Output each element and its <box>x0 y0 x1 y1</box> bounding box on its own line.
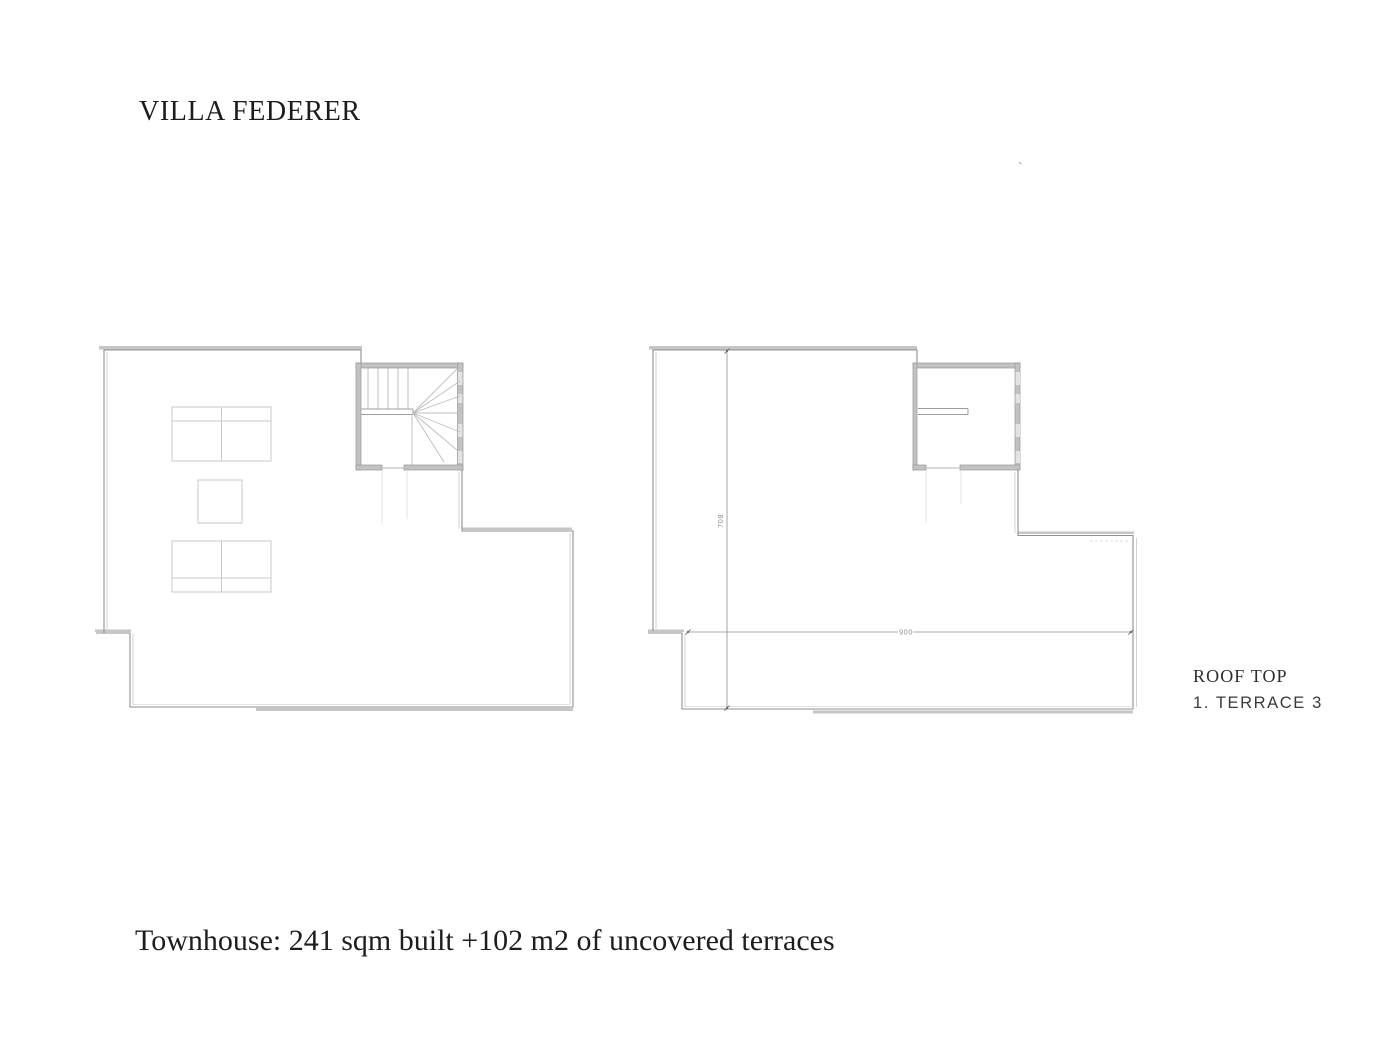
right-stairwell <box>913 363 1020 523</box>
stair-rail-icon <box>918 409 968 415</box>
page-title: VILLA FEDERER <box>139 96 361 128</box>
left-terrace-outline <box>95 346 573 711</box>
left-stairwell <box>356 363 463 524</box>
legend-item-terrace: 1. TERRACE 3 <box>1193 694 1323 713</box>
sofa-icon <box>172 407 271 461</box>
dim-label-width: 900 <box>899 628 913 637</box>
sofa-icon <box>172 541 271 592</box>
plan-legend: ROOF TOP 1. TERRACE 3 <box>1193 666 1323 713</box>
stray-mark: ` <box>1018 160 1023 177</box>
stair-winders-icon <box>412 369 460 465</box>
stair-treads-icon <box>368 369 408 410</box>
left-terrace-furniture <box>172 407 271 592</box>
dimension-lines: 708 900 <box>686 349 1134 711</box>
right-terrace-outline <box>648 346 1137 714</box>
legend-title: ROOF TOP <box>1193 666 1323 687</box>
stair-rail-icon <box>361 409 413 415</box>
floor-plan-left <box>88 338 593 723</box>
coffee-table-icon <box>198 480 242 523</box>
floor-plan-right: 708 900 <box>640 338 1150 723</box>
page: VILLA FEDERER ` <box>0 0 1400 1050</box>
dim-label-height: 708 <box>716 514 725 528</box>
plan-caption: Townhouse: 241 sqm built +102 m2 of unco… <box>135 924 835 958</box>
